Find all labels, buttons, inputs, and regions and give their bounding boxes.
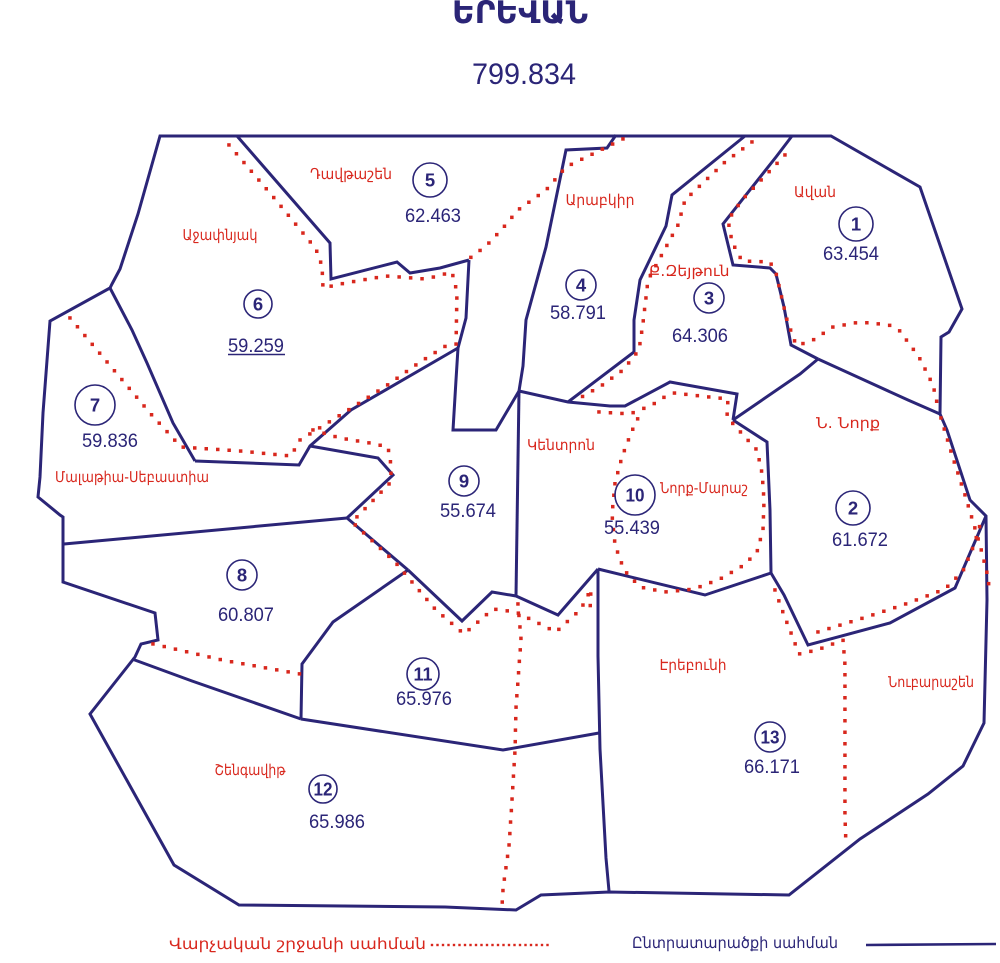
svg-text:63.454: 63.454 <box>823 244 879 265</box>
svg-text:799.834: 799.834 <box>472 58 576 91</box>
svg-text:55.674: 55.674 <box>440 501 496 522</box>
svg-text:11: 11 <box>414 664 433 685</box>
svg-text:65.986: 65.986 <box>309 812 365 833</box>
svg-text:61.672: 61.672 <box>832 530 888 551</box>
svg-text:4: 4 <box>576 275 587 296</box>
svg-text:8: 8 <box>237 565 247 586</box>
svg-text:62.463: 62.463 <box>405 206 461 227</box>
svg-text:5: 5 <box>425 170 435 191</box>
svg-text:10: 10 <box>626 485 645 506</box>
svg-text:64.306: 64.306 <box>672 326 728 347</box>
svg-text:7: 7 <box>90 395 100 416</box>
svg-text:59.836: 59.836 <box>82 431 138 452</box>
svg-text:6: 6 <box>253 294 263 315</box>
svg-text:66.171: 66.171 <box>744 757 800 778</box>
svg-text:58.791: 58.791 <box>550 303 606 324</box>
svg-text:1: 1 <box>851 214 861 235</box>
svg-text:3: 3 <box>704 288 714 309</box>
svg-text:65.976: 65.976 <box>396 689 452 710</box>
svg-text:55.439: 55.439 <box>604 518 660 539</box>
svg-text:13: 13 <box>761 727 780 748</box>
svg-text:9: 9 <box>459 471 469 492</box>
svg-text:2: 2 <box>848 498 858 519</box>
svg-text:60.807: 60.807 <box>218 605 274 626</box>
svg-text:12: 12 <box>314 779 333 800</box>
